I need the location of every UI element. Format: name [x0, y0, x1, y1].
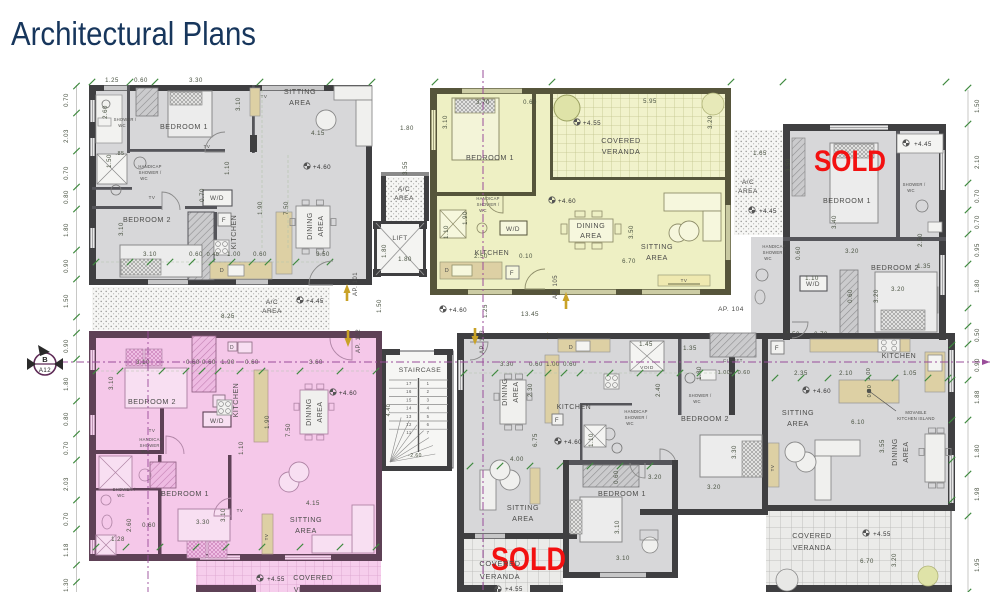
svg-text:1.28: 1.28: [111, 537, 125, 543]
svg-text:COVERED: COVERED: [601, 136, 640, 145]
svg-text:WC: WC: [626, 421, 633, 426]
svg-text:3.50: 3.50: [786, 158, 792, 172]
svg-text:3.30: 3.30: [732, 445, 738, 459]
svg-text:2: 2: [427, 389, 430, 394]
svg-text:DINING: DINING: [502, 378, 509, 406]
svg-text:AREA: AREA: [787, 419, 809, 428]
svg-text:0.95: 0.95: [975, 243, 981, 257]
svg-text:SHOWER /: SHOWER /: [139, 170, 162, 175]
svg-text:1.90: 1.90: [265, 415, 271, 429]
svg-text:7: 7: [427, 430, 430, 435]
svg-text:1.88: 1.88: [975, 390, 981, 404]
svg-text:1.80: 1.80: [398, 257, 412, 263]
svg-text:W/D: W/D: [506, 226, 520, 233]
svg-text:1.10: 1.10: [589, 433, 595, 447]
svg-text:W/D: W/D: [210, 418, 224, 425]
svg-text:1.50: 1.50: [975, 99, 981, 113]
svg-text:AP. 104: AP. 104: [718, 306, 744, 313]
svg-text:3.10: 3.10: [615, 520, 621, 534]
svg-text:4.40: 4.40: [386, 404, 392, 417]
svg-text:0.50: 0.50: [975, 328, 981, 342]
svg-text:0.60: 0.60: [186, 360, 200, 366]
svg-text:4.00: 4.00: [510, 457, 524, 463]
svg-text:0.70: 0.70: [975, 215, 981, 229]
svg-text:KITCHEN: KITCHEN: [233, 383, 240, 418]
svg-text:KITCHEN: KITCHEN: [557, 404, 592, 411]
svg-text:BEDROOM 2: BEDROOM 2: [123, 215, 171, 224]
svg-text:0.70: 0.70: [200, 188, 206, 202]
svg-text:DINING: DINING: [306, 398, 313, 426]
svg-text:3.30: 3.30: [500, 362, 514, 368]
svg-text:BEDROOM 1: BEDROOM 1: [160, 122, 208, 131]
svg-text:AREA: AREA: [318, 215, 325, 236]
svg-text:1.05: 1.05: [903, 371, 917, 377]
svg-text:KITCHEN: KITCHEN: [231, 215, 238, 250]
svg-text:WC: WC: [907, 188, 914, 193]
svg-text:AREA: AREA: [317, 401, 324, 422]
svg-text:0.60: 0.60: [245, 360, 259, 366]
svg-text:1.50: 1.50: [64, 294, 70, 308]
svg-text:2.60: 2.60: [103, 105, 109, 119]
svg-text:D: D: [230, 345, 234, 351]
svg-text:TV: TV: [681, 278, 688, 283]
svg-text:2.60: 2.60: [127, 518, 133, 532]
svg-text:A/C: A/C: [266, 299, 278, 306]
svg-text:16: 16: [406, 389, 412, 394]
svg-text:BEDROOM 1: BEDROOM 1: [161, 489, 209, 498]
svg-text:LIFT: LIFT: [392, 235, 407, 242]
svg-text:WC: WC: [118, 123, 125, 128]
svg-text:SHOWER /: SHOWER /: [114, 117, 137, 122]
svg-text:TV: TV: [149, 195, 156, 200]
svg-text:F: F: [222, 218, 226, 224]
svg-text:DINING: DINING: [307, 212, 314, 240]
svg-text:VERANDA: VERANDA: [602, 147, 641, 156]
svg-text:F: F: [555, 418, 559, 424]
svg-text:HANDICAP: HANDICAP: [476, 196, 499, 201]
svg-text:COVERED: COVERED: [479, 559, 520, 568]
svg-text:AREA: AREA: [262, 308, 282, 315]
svg-text:AREA: AREA: [738, 188, 758, 195]
svg-text:1.80: 1.80: [382, 244, 388, 258]
svg-text:BEDROOM 2: BEDROOM 2: [128, 397, 176, 406]
svg-text:3.30: 3.30: [196, 520, 210, 526]
svg-text:AREA: AREA: [580, 231, 602, 240]
svg-text:DINING: DINING: [892, 438, 899, 466]
svg-text:3: 3: [427, 397, 430, 402]
svg-text:7.50: 7.50: [286, 423, 292, 437]
svg-text:1.90: 1.90: [221, 360, 235, 366]
svg-text:WC: WC: [117, 493, 124, 498]
svg-text:AREA: AREA: [394, 195, 414, 202]
svg-text:3.10: 3.10: [443, 115, 449, 129]
svg-text:6.10: 6.10: [851, 420, 865, 426]
svg-text:1.50: 1.50: [377, 299, 383, 313]
svg-text:3.10: 3.10: [119, 222, 125, 236]
svg-text:B: B: [42, 355, 48, 364]
svg-text:3.10: 3.10: [221, 508, 227, 522]
svg-text:1.95: 1.95: [975, 558, 981, 572]
svg-text:1.18: 1.18: [64, 543, 70, 557]
svg-text:1.35: 1.35: [917, 264, 931, 270]
svg-text:+4.45: +4.45: [914, 142, 932, 148]
svg-text:0.60: 0.60: [796, 246, 802, 260]
svg-text:+4.60: +4.60: [813, 388, 831, 395]
svg-text:3.30: 3.30: [189, 78, 203, 84]
svg-text:1.98: 1.98: [975, 487, 981, 501]
svg-text:3.50: 3.50: [316, 252, 330, 258]
svg-text:3.50: 3.50: [629, 225, 635, 239]
svg-text:13: 13: [406, 414, 412, 419]
svg-text:5.95: 5.95: [643, 99, 657, 105]
svg-text:0.60: 0.60: [614, 470, 620, 484]
svg-text:F: F: [510, 271, 514, 277]
svg-text:2.30: 2.30: [528, 383, 534, 397]
svg-text:TV: TV: [204, 144, 211, 149]
svg-text:+4.55: +4.55: [267, 577, 285, 583]
svg-text:6.70: 6.70: [622, 259, 636, 265]
svg-text:SHOWER /: SHOWER /: [763, 250, 786, 255]
svg-text:KITCHEN ISLAND: KITCHEN ISLAND: [897, 416, 934, 421]
svg-text:Architectural Plans: Architectural Plans: [11, 16, 256, 53]
svg-text:1.25: 1.25: [483, 304, 489, 318]
svg-text:2.10: 2.10: [975, 155, 981, 169]
svg-text:1.80: 1.80: [975, 444, 981, 458]
svg-text:1.90: 1.90: [258, 201, 264, 215]
svg-text:AP. 102: AP. 102: [356, 329, 362, 353]
svg-text:TV: TV: [149, 428, 156, 433]
svg-text:2.35: 2.35: [794, 371, 808, 377]
svg-text:1.50: 1.50: [107, 154, 113, 168]
svg-text:1.80: 1.80: [64, 377, 70, 391]
svg-text:3.20: 3.20: [708, 115, 714, 129]
svg-text:6.75: 6.75: [533, 433, 539, 447]
svg-text:0.60: 0.60: [142, 523, 156, 529]
svg-text:0.90: 0.90: [975, 358, 981, 372]
svg-text:1.45: 1.45: [639, 342, 653, 348]
svg-text:1.80: 1.80: [400, 126, 414, 132]
svg-text:MOVABLE: MOVABLE: [905, 410, 926, 415]
svg-text:3.55: 3.55: [403, 161, 409, 175]
svg-text:0.60: 0.60: [523, 100, 537, 106]
svg-text:2.40: 2.40: [656, 383, 662, 397]
svg-text:13.45: 13.45: [521, 311, 539, 318]
svg-text:SHOWER /: SHOWER /: [689, 393, 712, 398]
svg-text:HANDICAP: HANDICAP: [762, 244, 785, 249]
svg-text:0.70: 0.70: [64, 93, 70, 107]
svg-text:0.90: 0.90: [64, 339, 70, 353]
svg-text:AP. 105: AP. 105: [553, 275, 559, 299]
svg-text:AREA: AREA: [289, 98, 311, 107]
svg-text:3.20: 3.20: [845, 249, 859, 255]
svg-text:COVERED: COVERED: [293, 573, 332, 582]
svg-text:WC: WC: [693, 399, 700, 404]
svg-text:TV: TV: [261, 94, 268, 99]
svg-text:3.20: 3.20: [707, 485, 721, 491]
svg-text:SITTING: SITTING: [284, 87, 316, 96]
svg-text:SHOWER /: SHOWER /: [903, 182, 926, 187]
svg-text:+4.55: +4.55: [583, 120, 601, 127]
svg-text:12: 12: [406, 422, 412, 427]
svg-text:DINING: DINING: [577, 221, 605, 230]
svg-text:F: F: [775, 346, 779, 352]
svg-text:0.70: 0.70: [64, 166, 70, 180]
svg-text:+4.60: +4.60: [449, 307, 467, 314]
svg-text:SITTING: SITTING: [507, 503, 539, 512]
svg-text:6.70: 6.70: [860, 559, 874, 565]
svg-text:1.30: 1.30: [64, 578, 70, 592]
svg-text:1.00: 1.00: [546, 362, 560, 368]
svg-text:1.90: 1.90: [463, 211, 469, 225]
svg-text:SOLD: SOLD: [814, 145, 886, 178]
svg-text:BEDROOM 1: BEDROOM 1: [823, 196, 871, 205]
svg-text:3.10: 3.10: [616, 556, 630, 562]
svg-text:1.10: 1.10: [444, 225, 450, 239]
svg-text:0.60: 0.60: [529, 362, 543, 368]
svg-text:HANDICAP: HANDICAP: [139, 437, 162, 442]
svg-text:0.80: 0.80: [867, 385, 873, 398]
svg-text:AREA: AREA: [903, 441, 910, 462]
svg-text:15: 15: [406, 397, 412, 402]
svg-text:STAIRCASE: STAIRCASE: [399, 367, 442, 374]
svg-text:-2.60: -2.60: [408, 453, 422, 459]
svg-text:1.10: 1.10: [239, 441, 245, 455]
svg-text:2.03: 2.03: [64, 477, 70, 491]
svg-text:3.10: 3.10: [143, 252, 157, 258]
svg-text:BEDROOM 2: BEDROOM 2: [871, 263, 919, 272]
svg-text:KITCHEN: KITCHEN: [882, 353, 917, 360]
svg-text:1: 1: [427, 381, 430, 386]
svg-text:BEDROOM 2: BEDROOM 2: [681, 414, 729, 423]
svg-text:+4.60: +4.60: [339, 390, 357, 397]
svg-text:+4.45: +4.45: [306, 299, 324, 305]
svg-text:SHOWER /: SHOWER /: [113, 487, 136, 492]
svg-text:0.80: 0.80: [64, 190, 70, 204]
svg-text:1.00: 1.00: [227, 252, 241, 258]
svg-text:1.10: 1.10: [805, 276, 819, 282]
svg-text:0.70: 0.70: [64, 441, 70, 455]
svg-text:WC: WC: [764, 256, 771, 261]
svg-text:0.60: 0.60: [848, 289, 854, 303]
svg-text:+4.55: +4.55: [873, 532, 891, 538]
svg-text:17: 17: [406, 381, 412, 386]
svg-text:+4.55: +4.55: [505, 587, 523, 592]
svg-text:VERANDA: VERANDA: [480, 572, 520, 581]
svg-text:D: D: [569, 345, 573, 351]
svg-text:TV: TV: [264, 534, 269, 541]
svg-text:2.50: 2.50: [918, 233, 924, 247]
svg-text:+4.60: +4.60: [558, 198, 576, 205]
svg-text:0.70: 0.70: [975, 189, 981, 203]
svg-text:+4.45: +4.45: [759, 209, 777, 215]
svg-text:11: 11: [406, 430, 412, 435]
svg-text:3.60: 3.60: [309, 360, 323, 366]
svg-text:A12: A12: [39, 368, 51, 374]
svg-text:5: 5: [427, 414, 430, 419]
svg-text:TV: TV: [237, 508, 244, 513]
svg-text:SHOWER /: SHOWER /: [140, 443, 163, 448]
svg-text:4.15: 4.15: [306, 501, 320, 507]
svg-text:D: D: [445, 268, 449, 274]
svg-text:1.65: 1.65: [753, 151, 767, 157]
svg-text:3.20: 3.20: [874, 289, 880, 303]
svg-text:A/C: A/C: [398, 186, 410, 193]
svg-text:3.10: 3.10: [109, 376, 115, 390]
svg-text:14: 14: [406, 406, 412, 411]
svg-text:0.10: 0.10: [519, 254, 533, 260]
svg-text:1.35: 1.35: [683, 346, 697, 352]
svg-text:VERANDA: VERANDA: [793, 543, 832, 552]
svg-text:3.40: 3.40: [832, 215, 838, 229]
svg-text:3.55: 3.55: [880, 439, 886, 453]
svg-text:0.60: 0.60: [738, 370, 751, 376]
svg-text:0.60: 0.60: [253, 252, 267, 258]
svg-text:BEDROOM 1: BEDROOM 1: [466, 153, 514, 162]
svg-text:0.60: 0.60: [202, 360, 216, 366]
svg-text:6: 6: [427, 422, 430, 427]
svg-text:D: D: [220, 268, 224, 274]
svg-text:SHOWER /: SHOWER /: [625, 415, 648, 420]
svg-text:SITTING: SITTING: [782, 408, 814, 417]
svg-text:4: 4: [427, 406, 430, 411]
svg-text:W/D: W/D: [806, 281, 820, 288]
svg-text:3.20: 3.20: [891, 287, 905, 293]
svg-text:SITTING: SITTING: [290, 515, 322, 524]
svg-text:+4.60: +4.60: [564, 439, 582, 446]
svg-text:.85: .85: [115, 151, 124, 157]
svg-text:TV: TV: [770, 465, 775, 472]
svg-text:3.10: 3.10: [236, 97, 242, 111]
svg-text:W/D: W/D: [210, 195, 224, 202]
svg-text:A/C: A/C: [742, 179, 754, 186]
svg-text:0.80: 0.80: [64, 412, 70, 426]
svg-text:1.80: 1.80: [64, 223, 70, 237]
svg-text:0.90: 0.90: [64, 259, 70, 273]
svg-text:1.25: 1.25: [105, 78, 119, 84]
svg-text:AREA: AREA: [646, 253, 668, 262]
svg-text:COVERED: COVERED: [792, 531, 831, 540]
svg-text:2.10: 2.10: [839, 371, 853, 377]
svg-text:AREA: AREA: [295, 526, 317, 535]
svg-text:1.80: 1.80: [975, 279, 981, 293]
svg-text:HANDICAP: HANDICAP: [624, 409, 647, 414]
svg-text:3.20: 3.20: [892, 553, 898, 567]
svg-text:AREA: AREA: [513, 381, 520, 402]
svg-text:WC: WC: [140, 176, 147, 181]
svg-text:0.60: 0.60: [563, 362, 577, 368]
svg-text:HANDICAP: HANDICAP: [138, 164, 161, 169]
svg-text:0.40: 0.40: [207, 252, 220, 258]
svg-text:AREA: AREA: [512, 514, 534, 523]
svg-text:2.50: 2.50: [474, 254, 488, 260]
svg-text:SITTING: SITTING: [641, 242, 673, 251]
svg-text:AP. 101: AP. 101: [353, 272, 359, 296]
svg-text:2.03: 2.03: [64, 129, 70, 143]
svg-text:0.70: 0.70: [64, 512, 70, 526]
svg-text:4.15: 4.15: [311, 131, 325, 137]
svg-text:7.50: 7.50: [284, 201, 290, 215]
svg-text:0.60: 0.60: [134, 78, 148, 84]
svg-text:8.25: 8.25: [221, 314, 235, 320]
svg-text:1.10: 1.10: [225, 161, 231, 175]
svg-text:+4.60: +4.60: [313, 164, 331, 171]
svg-text:3.20: 3.20: [648, 475, 662, 481]
svg-text:0.60: 0.60: [189, 252, 203, 258]
